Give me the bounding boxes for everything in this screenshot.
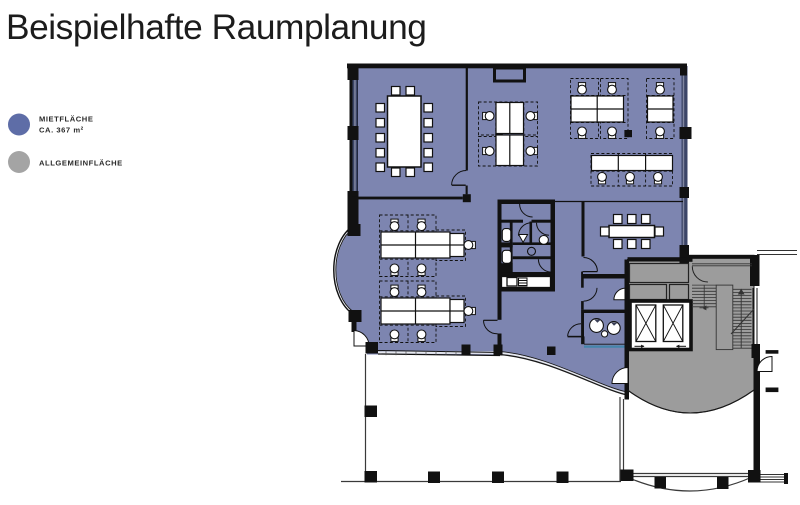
svg-text:ALLGEMEINFLÄCHE: ALLGEMEINFLÄCHE (39, 159, 123, 168)
svg-text:Beispielhafte Raumplanung: Beispielhafte Raumplanung (6, 8, 426, 47)
svg-text:CA. 367 m²: CA. 367 m² (39, 126, 84, 135)
svg-text:MIETFLÄCHE: MIETFLÄCHE (39, 115, 93, 124)
